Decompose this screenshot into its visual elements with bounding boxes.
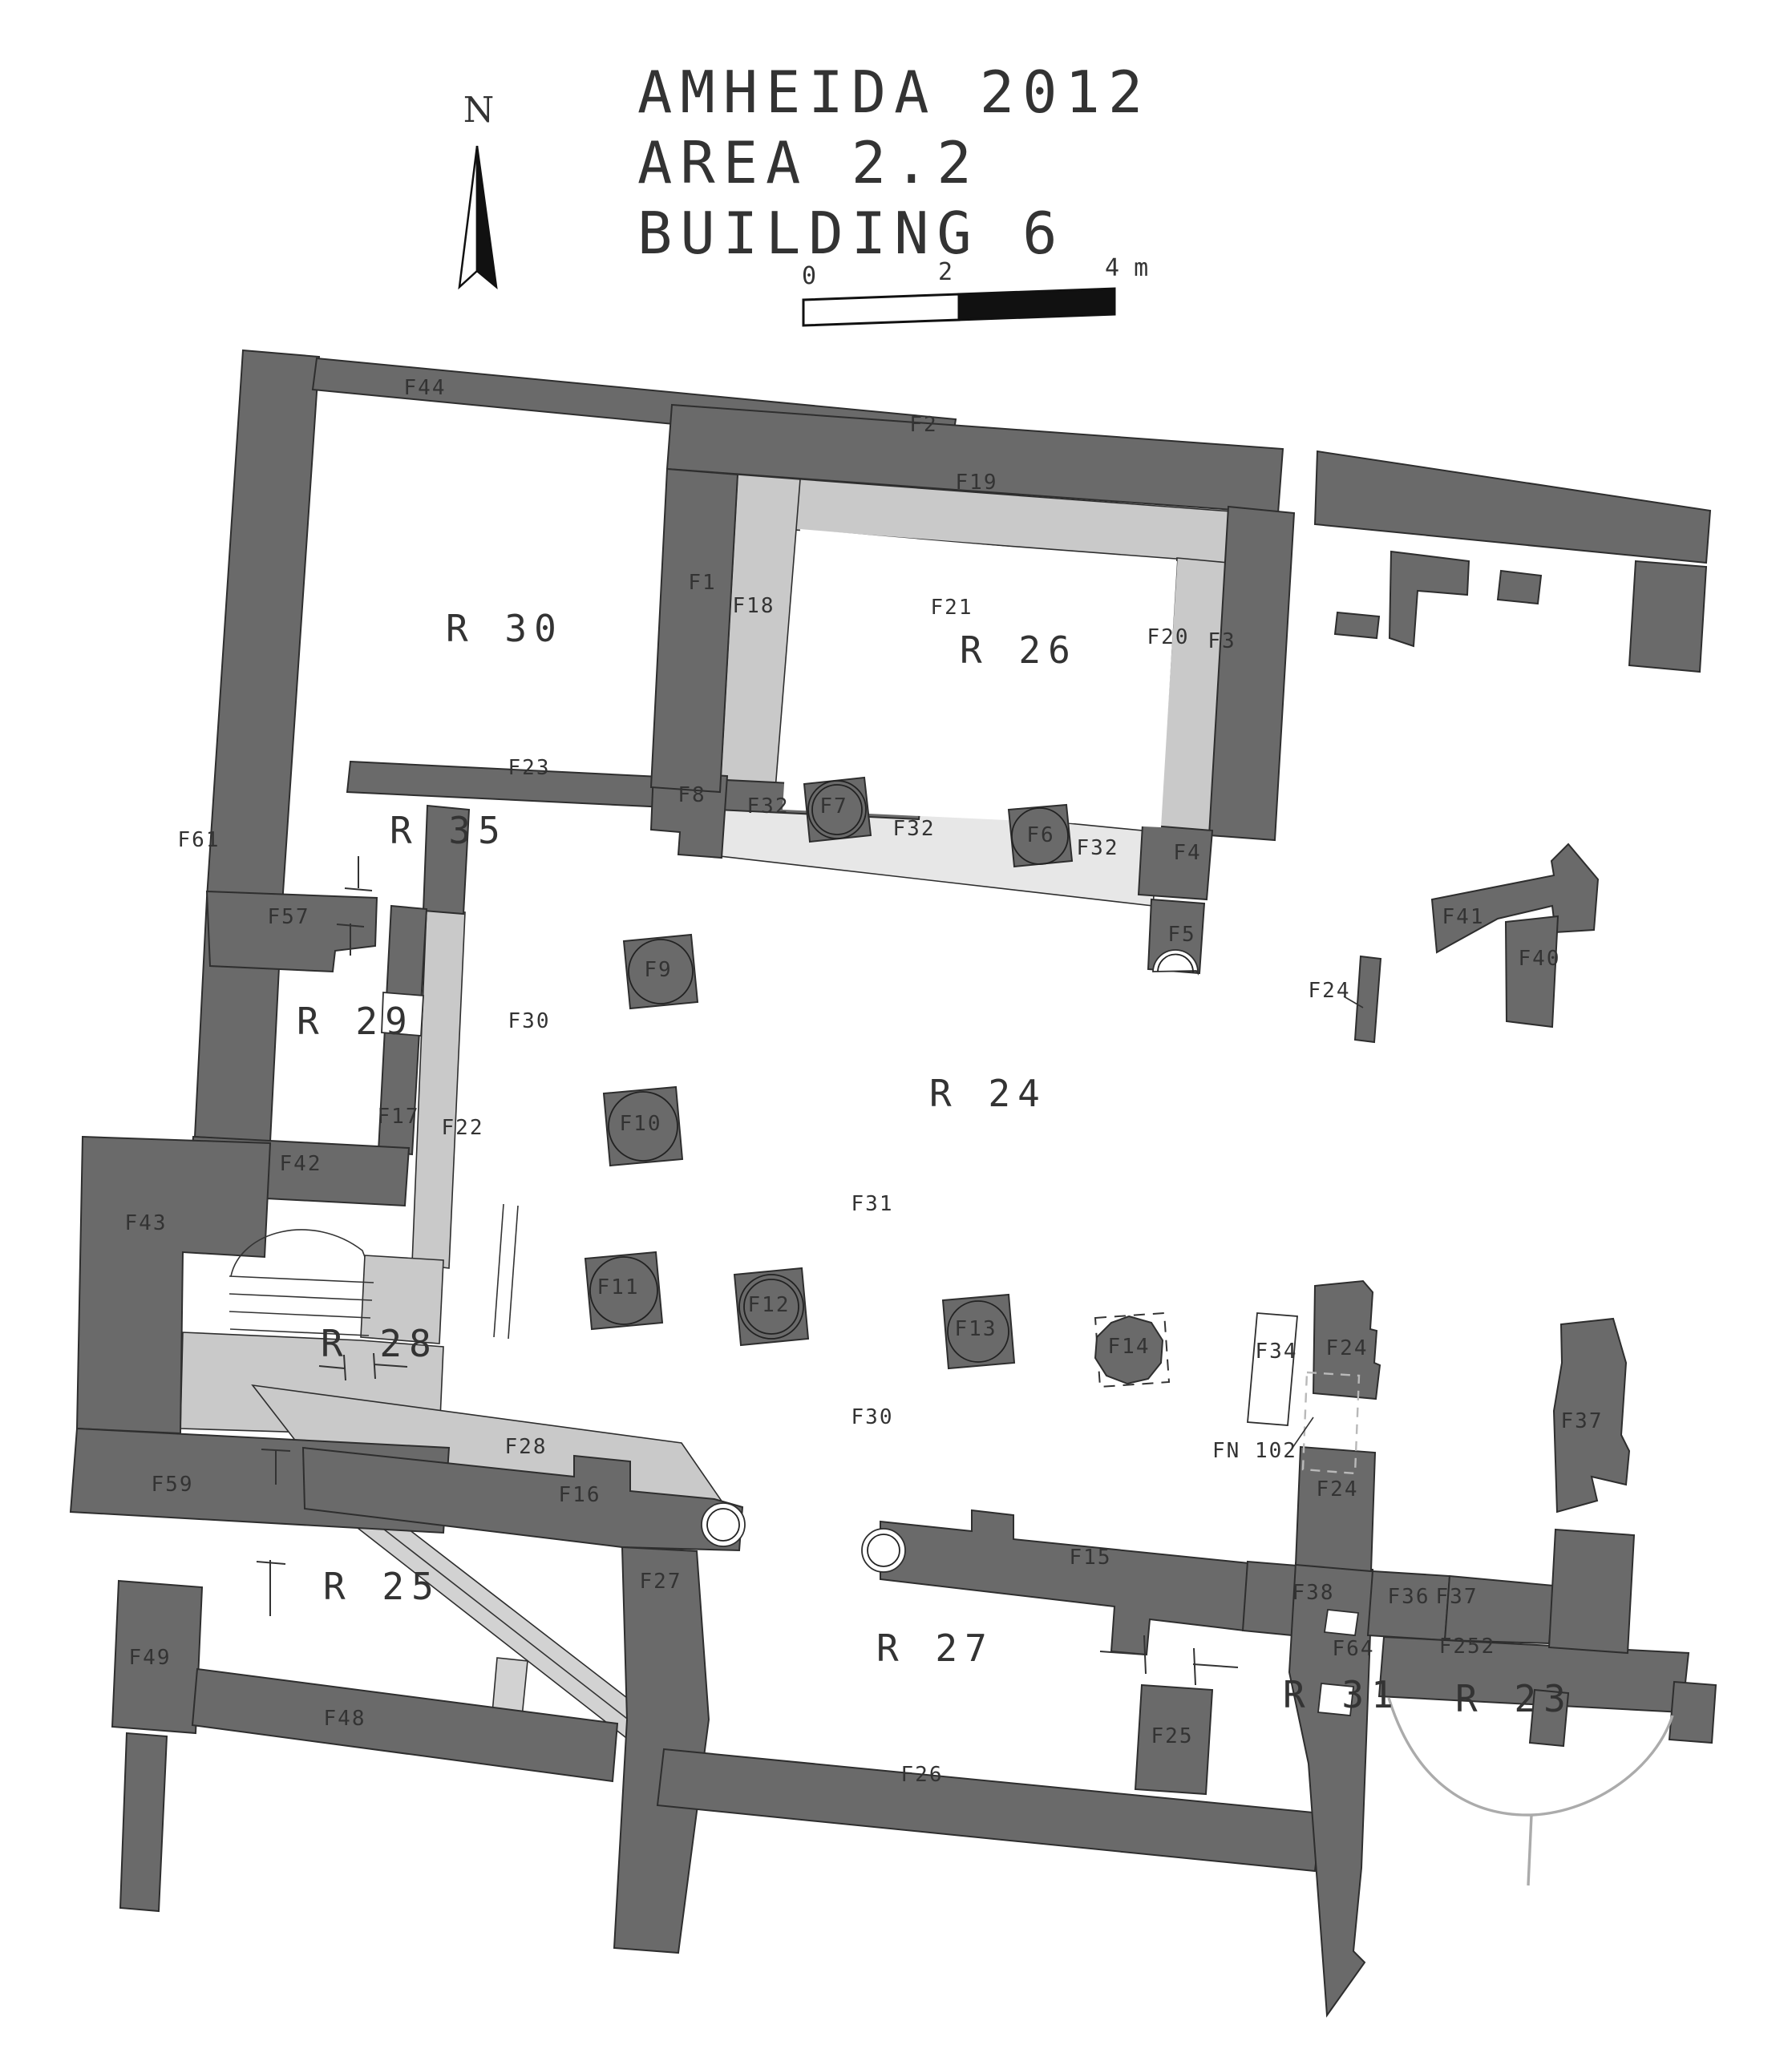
scale-bar-white-half [803, 294, 959, 325]
feature-label-f7-12: F7 [819, 794, 847, 818]
feature-label-f30-34: F30 [852, 1405, 894, 1429]
feature-label-f64-50: F64 [1333, 1637, 1375, 1661]
wall-f40 [1506, 916, 1558, 1027]
wall-topright-step [1390, 552, 1469, 646]
stair-step-2 [229, 1294, 372, 1300]
feature-label-f38-46: F38 [1292, 1581, 1335, 1605]
site-plan-page: N AMHEIDA 2012 AREA 2.2 BUILDING 6 0 2 4… [0, 0, 1792, 2049]
room-label-r-24-4: R 24 [929, 1072, 1047, 1115]
wall-f15-f38-link [1243, 1562, 1297, 1635]
feature-label-f61-8: F61 [178, 828, 220, 852]
feature-label-f23-9: F23 [508, 756, 551, 780]
building-plan-drawing: N AMHEIDA 2012 AREA 2.2 BUILDING 6 0 2 4… [0, 0, 1792, 2049]
niche-f15-end [862, 1529, 905, 1572]
wall-topright-bar [1315, 451, 1710, 563]
partition-line-1 [494, 1204, 504, 1337]
feature-label-f37-48: F37 [1436, 1585, 1479, 1609]
wall-f61 [207, 350, 319, 904]
feature-label-f12-30: F12 [748, 1293, 791, 1317]
feature-label-f13-31: F13 [955, 1317, 997, 1341]
tick-r35-upper [345, 856, 372, 891]
title-block: AMHEIDA 2012 AREA 2.2 BUILDING 6 [637, 59, 1151, 267]
stair-step-1 [229, 1276, 374, 1283]
feature-label-f25-52: F25 [1151, 1724, 1194, 1748]
room-label-r-28-5: R 28 [321, 1322, 439, 1365]
wall-f27 [614, 1547, 709, 1953]
room-label-r-25-6: R 25 [323, 1565, 441, 1608]
feature-label-f2-1: F2 [909, 413, 937, 437]
feature-label-f40-19: F40 [1519, 947, 1561, 971]
feature-label-f32-15: F32 [1077, 836, 1119, 860]
stair-step-3 [229, 1311, 370, 1318]
feature-label-f34-35: F34 [1256, 1340, 1298, 1364]
feature-label-f1-3: F1 [688, 571, 716, 595]
feature-label-f17-23: F17 [378, 1105, 420, 1129]
wall-f26 [657, 1749, 1321, 1871]
partition-line-2 [508, 1206, 518, 1339]
title-line-2: AREA 2.2 [637, 129, 980, 196]
feature-label-f32-11: F32 [747, 794, 790, 818]
feature-label-f11-29: F11 [597, 1275, 640, 1299]
north-arrow-left-half [459, 146, 477, 287]
room-label-r-35-2: R 35 [390, 809, 508, 852]
scale-tick-2: 2 [938, 258, 953, 286]
feature-f34-outline [1248, 1313, 1297, 1425]
scale-tick-0: 0 [802, 262, 816, 290]
wall-f48 [192, 1669, 617, 1781]
feature-label-f5-17: F5 [1167, 923, 1195, 947]
feature-label-f6-14: F6 [1026, 823, 1054, 847]
feature-label-f36-47: F36 [1388, 1585, 1430, 1609]
feature-label-f8-10: F8 [678, 783, 706, 807]
feature-label-f28-40: F28 [505, 1435, 548, 1459]
feature-label-f10-28: F10 [620, 1112, 662, 1136]
r23-arc-leader [1528, 1815, 1531, 1885]
room-label-r-27-7: R 27 [876, 1627, 994, 1670]
feature-label-f24-38: F24 [1317, 1477, 1359, 1501]
wall-above-f252 [1549, 1530, 1634, 1653]
room-label-r-30-0: R 30 [446, 607, 564, 650]
room-label-r-31-8: R 31 [1283, 1673, 1401, 1716]
feature-label-f49-43: F49 [129, 1646, 172, 1670]
wall-f57 [207, 891, 377, 972]
north-arrow: N [459, 90, 496, 287]
window-f38 [1325, 1610, 1358, 1635]
wall-f24-lower [1296, 1447, 1375, 1571]
wall-f49-leg [120, 1733, 167, 1911]
feature-label-f20-6: F20 [1147, 625, 1190, 649]
feature-label-f31-33: F31 [852, 1192, 894, 1216]
wall-topright-connector [1498, 571, 1541, 604]
feature-label-f41-18: F41 [1442, 905, 1485, 929]
feature-label-f32-13: F32 [893, 817, 936, 841]
wall-block-far-right [1669, 1682, 1716, 1743]
feature-label-fn-102-37: FN 102 [1212, 1439, 1297, 1463]
feature-label-f24-20: F24 [1309, 979, 1351, 1003]
feature-label-f59-39: F59 [152, 1473, 194, 1497]
north-arrow-right-half [477, 146, 496, 287]
room-label-r-26-1: R 26 [960, 628, 1078, 672]
feature-label-f22-24: F22 [442, 1116, 484, 1140]
feature-label-f3-7: F3 [1207, 629, 1236, 653]
feature-label-f16-41: F16 [559, 1483, 601, 1507]
feature-label-f37-49: F37 [1561, 1409, 1604, 1433]
feature-label-f30-22: F30 [508, 1009, 551, 1033]
feature-label-f19-2: F19 [956, 471, 998, 495]
feature-label-f27-42: F27 [640, 1570, 682, 1594]
wall-topright-column [1629, 561, 1706, 672]
room-label-r-23-9: R 23 [1455, 1677, 1573, 1720]
tick-r27-r31-right [1193, 1648, 1238, 1685]
feature-label-f42-25: F42 [280, 1152, 322, 1176]
feature-label-f9-27: F9 [644, 958, 672, 982]
feature-label-f26-53: F26 [901, 1763, 944, 1787]
wall-topright-foot [1335, 612, 1379, 638]
feature-label-f21-5: F21 [931, 596, 973, 620]
feature-label-f24-36: F24 [1326, 1336, 1369, 1360]
title-line-1: AMHEIDA 2012 [637, 59, 1151, 126]
feature-label-f44-0: F44 [404, 376, 447, 400]
feature-label-f18-4: F18 [733, 594, 775, 618]
feature-label-f14-32: F14 [1108, 1335, 1151, 1359]
feature-label-f48-44: F48 [324, 1707, 366, 1731]
scale-bar-black-half [959, 289, 1114, 320]
feature-label-f252-51: F252 [1439, 1635, 1496, 1659]
niche-f16-end [702, 1503, 745, 1546]
title-line-3: BUILDING 6 [637, 200, 1065, 267]
feature-label-f57-21: F57 [268, 905, 310, 929]
north-label: N [463, 90, 495, 131]
feature-label-f4-16: F4 [1173, 841, 1201, 865]
feature-label-f15-45: F15 [1070, 1546, 1112, 1570]
tick-below-f59 [257, 1560, 285, 1616]
wall-f24-sliver [1355, 956, 1381, 1042]
scale-tick-4: 4 m [1105, 254, 1148, 282]
feature-label-f43-26: F43 [125, 1211, 168, 1235]
room-label-r-29-3: R 29 [297, 1000, 415, 1043]
